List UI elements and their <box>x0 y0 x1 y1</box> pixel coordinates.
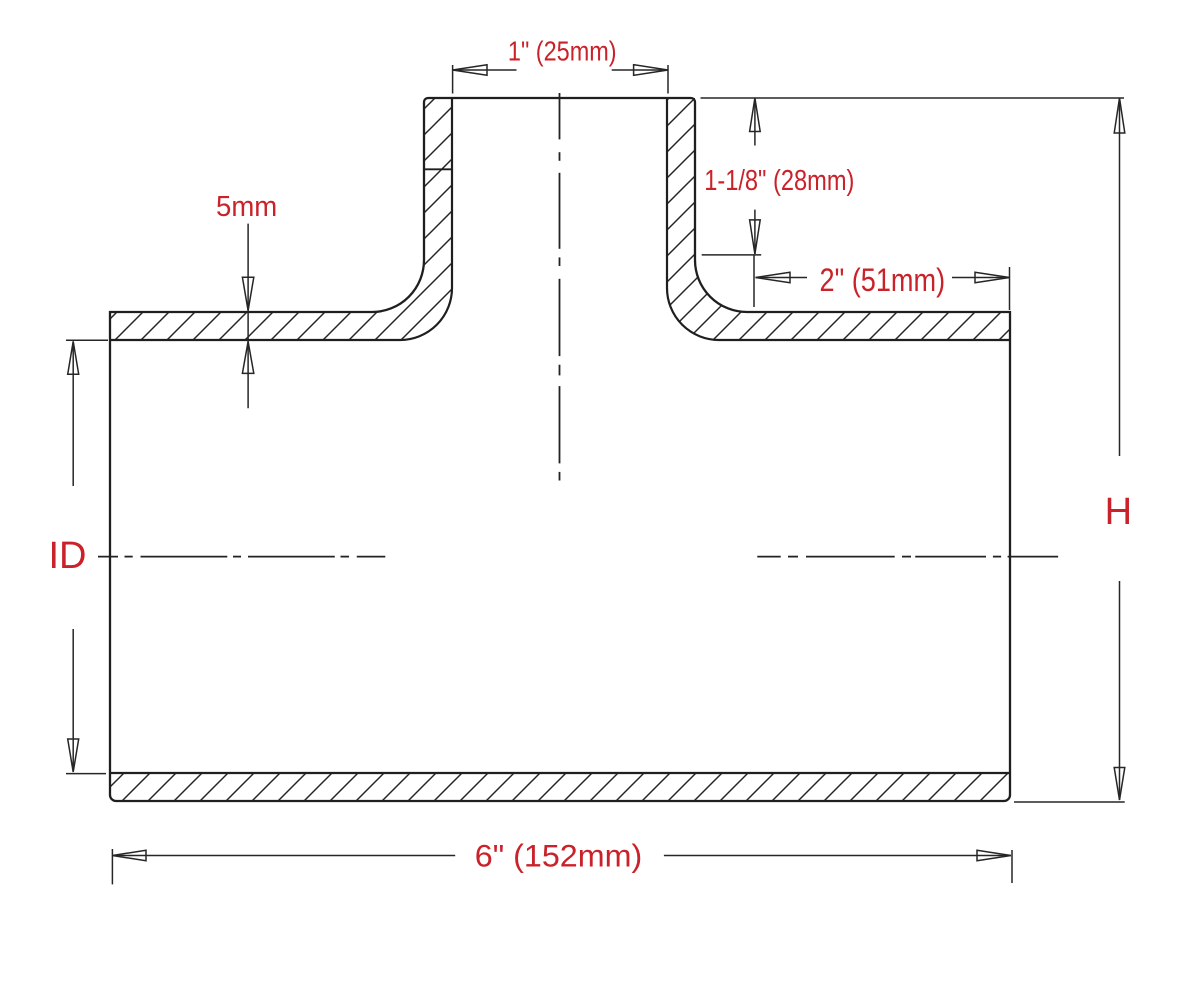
svg-text:H: H <box>1105 491 1132 533</box>
svg-text:5mm: 5mm <box>216 191 277 223</box>
svg-text:2" (51mm): 2" (51mm) <box>820 262 946 298</box>
svg-text:6" (152mm): 6" (152mm) <box>475 838 642 874</box>
svg-text:1" (25mm): 1" (25mm) <box>508 36 617 67</box>
svg-text:ID: ID <box>49 535 87 577</box>
svg-text:1-1/8" (28mm): 1-1/8" (28mm) <box>704 165 854 197</box>
